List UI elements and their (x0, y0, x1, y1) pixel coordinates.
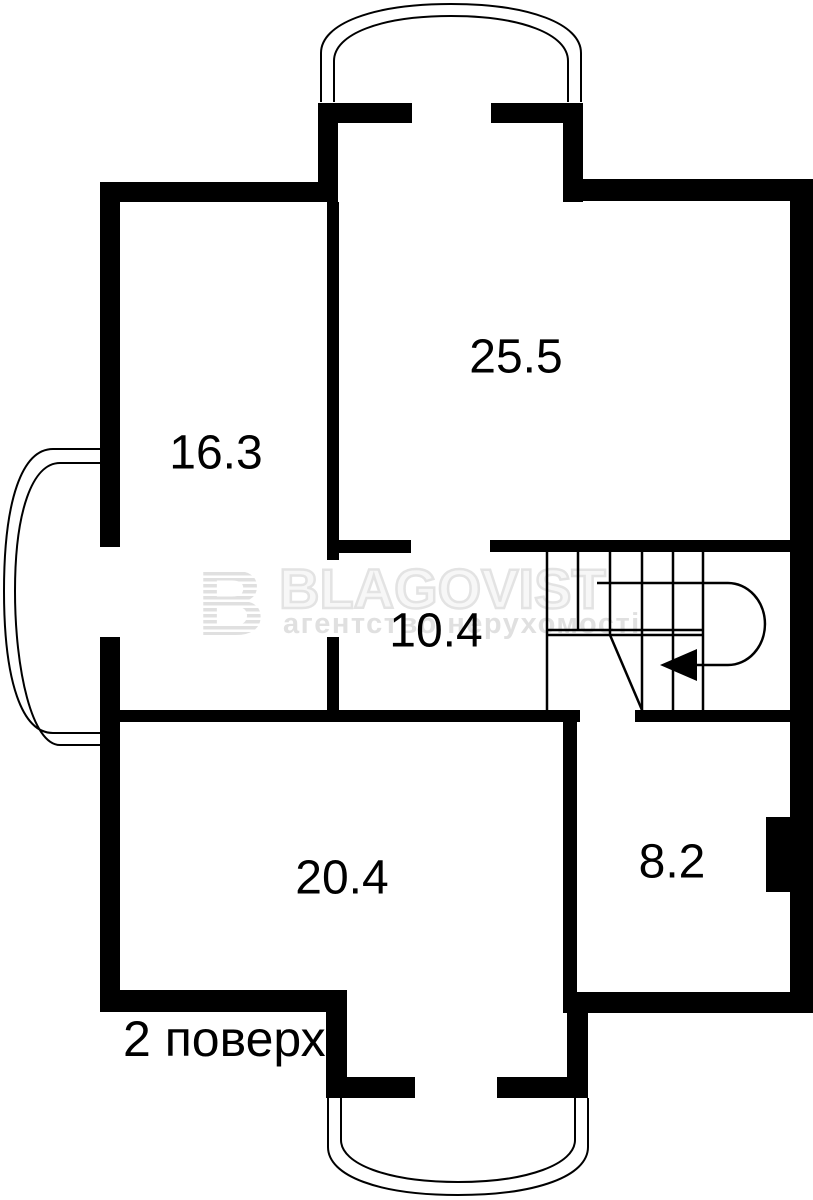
stair-arrow-path (597, 583, 765, 665)
floor-caption: 2 поверх (123, 1010, 326, 1068)
room-area-label: 16.3 (169, 426, 262, 481)
wall-right (790, 179, 813, 1013)
stair-arrow-head (660, 649, 697, 681)
floor-plan-page: B BLAGOVIST агентство нерухомості (0, 0, 813, 1200)
wall-hall-top-left-stub (339, 540, 411, 553)
room-area-label: 10.4 (389, 604, 482, 659)
wall-room-divider-lower (327, 637, 339, 712)
wall-top-bay-left-segment (318, 103, 412, 123)
bay-window-left-outer (4, 449, 100, 733)
staircase (547, 552, 703, 710)
wall-niche-block (766, 817, 790, 892)
wall-stair-top (490, 540, 790, 552)
room-area-label: 8.2 (639, 835, 706, 890)
bay-window-left-inner (15, 463, 100, 745)
wall-top-left (100, 182, 338, 202)
bay-window-bottom-inner (341, 1098, 575, 1182)
wall-bottom-left (100, 990, 347, 1012)
wall-bottom-bay-right-segment (497, 1077, 588, 1098)
wall-hall-bottom-left (120, 710, 580, 722)
bay-window-bottom-outer (328, 1098, 588, 1195)
exterior-walls (100, 103, 813, 1098)
wall-left-lower (100, 637, 120, 1012)
bay-window-top-outer (321, 4, 581, 102)
room-area-label: 25.5 (469, 330, 562, 385)
floor-plan-drawing (0, 0, 813, 1200)
wall-hall-bottom-right (635, 710, 790, 722)
wall-room-divider-upper (327, 202, 339, 560)
wall-room-divider-bottom (563, 722, 577, 992)
wall-top-right (563, 179, 812, 201)
wall-bottom-right (563, 992, 813, 1013)
bay-window-top-inner (334, 16, 568, 102)
room-area-label: 20.4 (295, 851, 388, 906)
wall-left-upper (100, 182, 120, 547)
stair-break-line (610, 635, 642, 710)
